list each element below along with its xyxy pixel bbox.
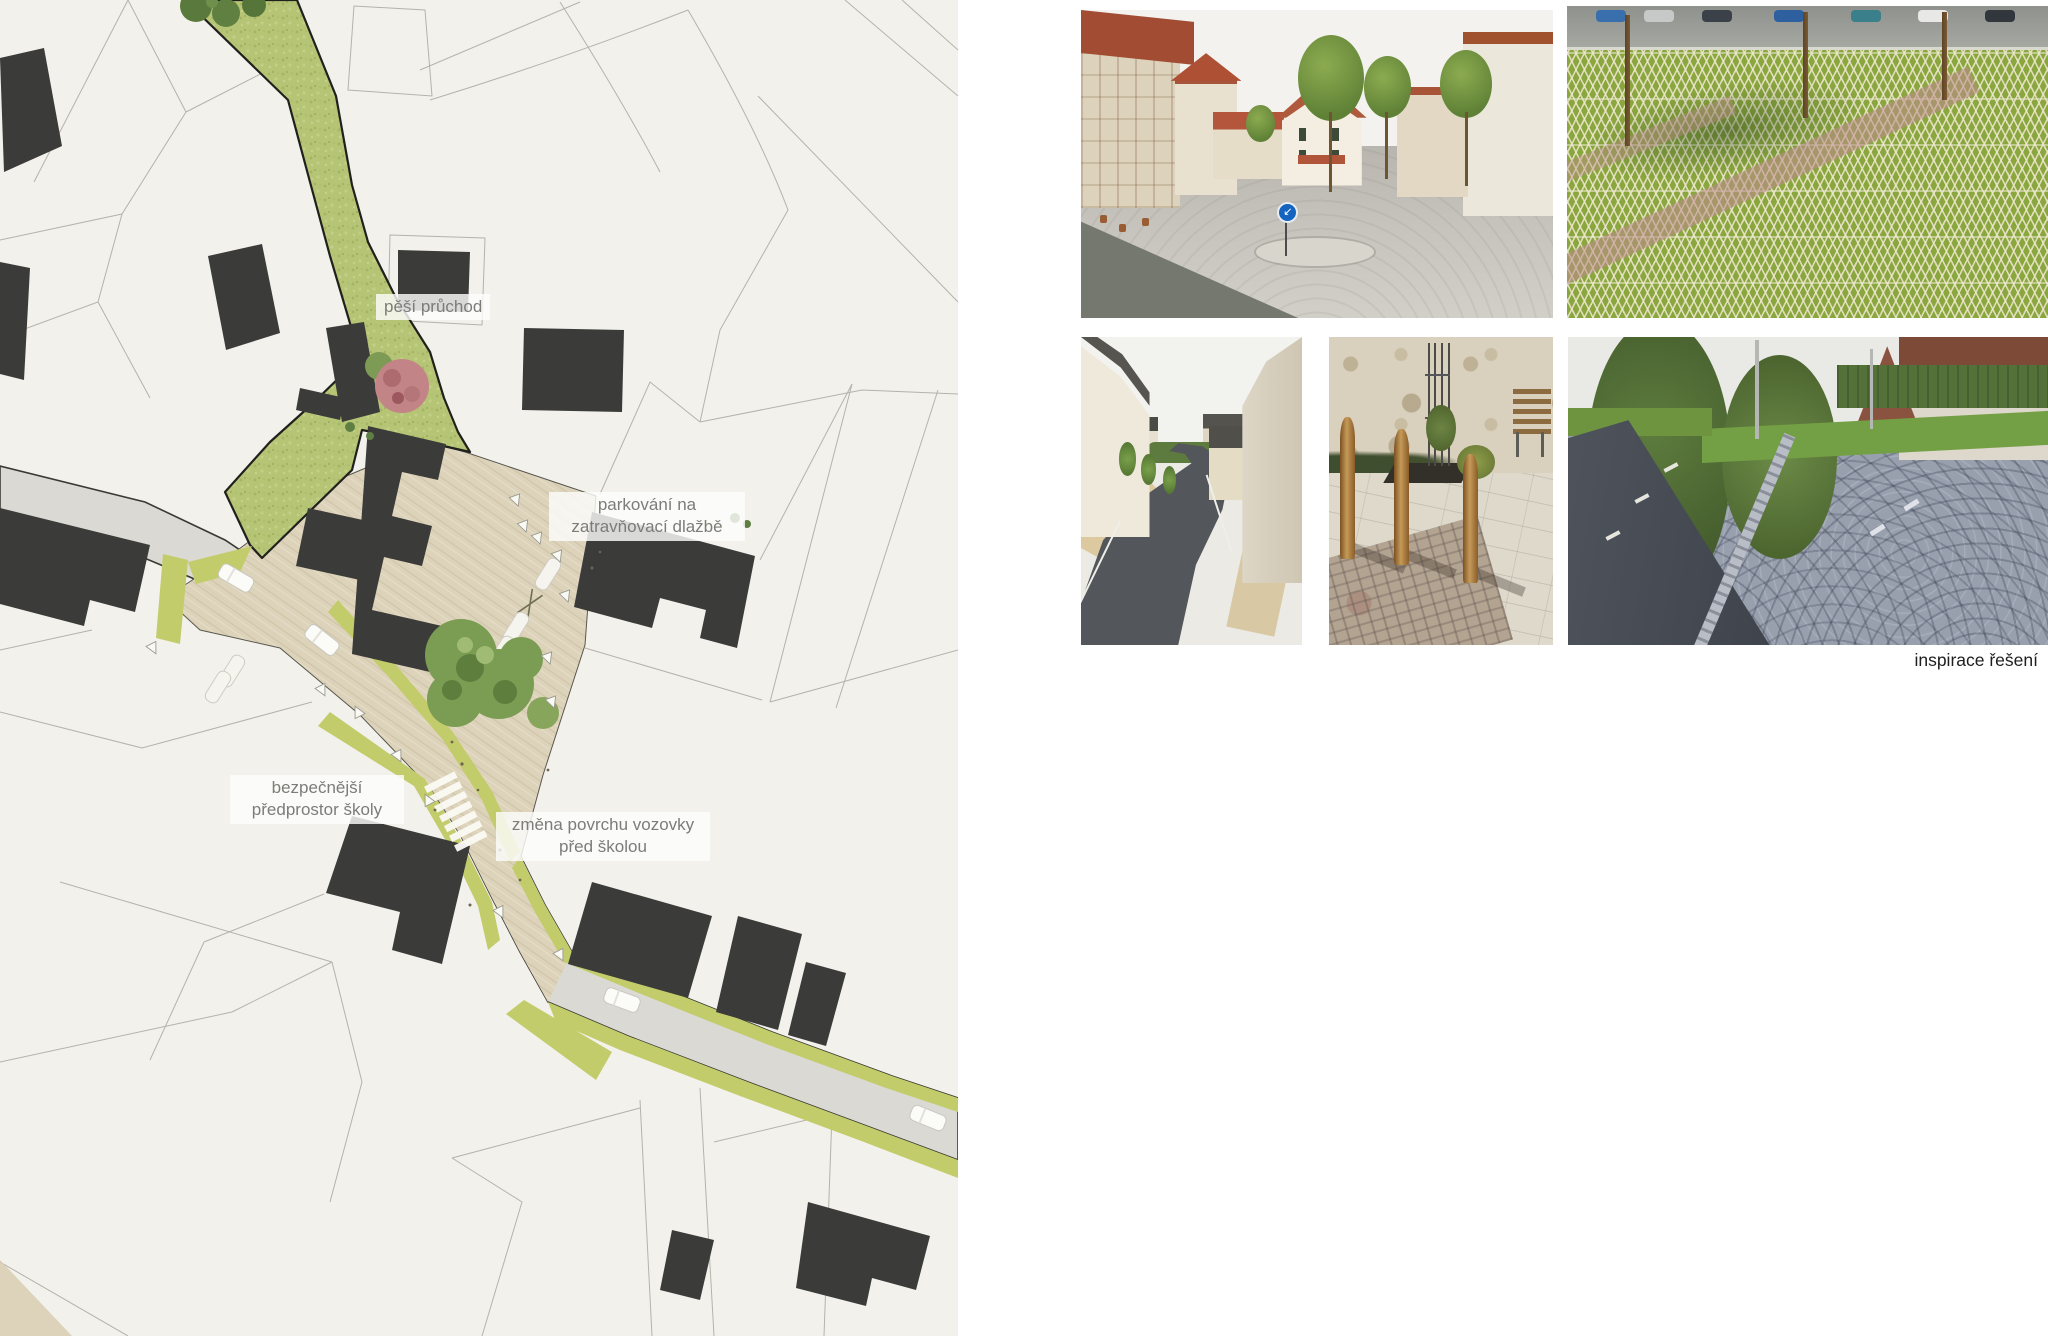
young-tree xyxy=(1119,442,1137,476)
tree-guard-bar xyxy=(1428,343,1430,466)
label-safer-school-forecourt: bezpečnější předprostor školy xyxy=(230,775,404,824)
photo-grass-pavers xyxy=(1567,6,2048,318)
tree-trunk xyxy=(1942,12,1947,99)
hedge xyxy=(1837,365,2048,408)
flower-pot xyxy=(1119,224,1126,232)
grass-verge xyxy=(1568,408,1712,436)
photo-cobblestone-road xyxy=(1568,337,2048,645)
board-caption: inspirace řešení xyxy=(1914,650,2038,671)
keep-right-sign-icon: ↙ xyxy=(1277,202,1298,223)
site-plan: pěší průchod parkování na zatravňovací d… xyxy=(0,0,958,1336)
tree-trunk xyxy=(1625,15,1630,146)
wooden-bollard xyxy=(1340,417,1355,559)
label-pedestrian-passage: pěší průchod xyxy=(376,294,490,320)
awning xyxy=(1298,155,1345,164)
photo-narrow-street xyxy=(1081,337,1302,645)
young-tree xyxy=(1141,454,1156,485)
street-tree xyxy=(1246,105,1274,142)
label-road-surface-change: změna povrchu vozovky před školou xyxy=(496,812,710,861)
tree-trunk xyxy=(1803,12,1808,118)
window xyxy=(1299,128,1306,141)
street-tree xyxy=(1440,50,1492,118)
bench xyxy=(1513,389,1551,435)
tree-trunk xyxy=(1465,112,1468,186)
parked-car xyxy=(1851,10,1881,22)
wooden-bollard xyxy=(1463,454,1478,583)
parked-car xyxy=(1644,10,1674,22)
lamp-post xyxy=(1755,340,1759,439)
site-plan-drawing xyxy=(0,0,958,1336)
wooden-bollard xyxy=(1394,429,1409,565)
young-tree xyxy=(1426,405,1455,451)
flower-pot xyxy=(1142,218,1149,226)
parked-car xyxy=(1985,10,2015,22)
street-tree xyxy=(1298,35,1364,121)
parked-car xyxy=(1774,10,1804,22)
lamp-post xyxy=(1870,349,1873,429)
parked-car xyxy=(1702,10,1732,22)
presentation-sheet: pěší průchod parkování na zatravňovací d… xyxy=(0,0,2048,1336)
bench-legs xyxy=(1516,432,1544,457)
window xyxy=(1331,128,1338,141)
flower-pot xyxy=(1100,215,1107,223)
house-shape xyxy=(1209,426,1247,500)
tree-trunk xyxy=(1329,112,1332,192)
photo-wooden-bollards xyxy=(1329,337,1553,645)
tree-trunk xyxy=(1385,112,1388,180)
young-tree xyxy=(1163,466,1176,494)
label-grass-paver-parking: parkování na zatravňovací dlažbě xyxy=(549,492,745,541)
traffic-island xyxy=(1256,238,1374,266)
tree-guard-bar xyxy=(1425,374,1450,376)
photo-village-street: ↙ xyxy=(1081,10,1553,318)
parked-car xyxy=(1596,10,1626,22)
street-tree xyxy=(1364,56,1411,118)
